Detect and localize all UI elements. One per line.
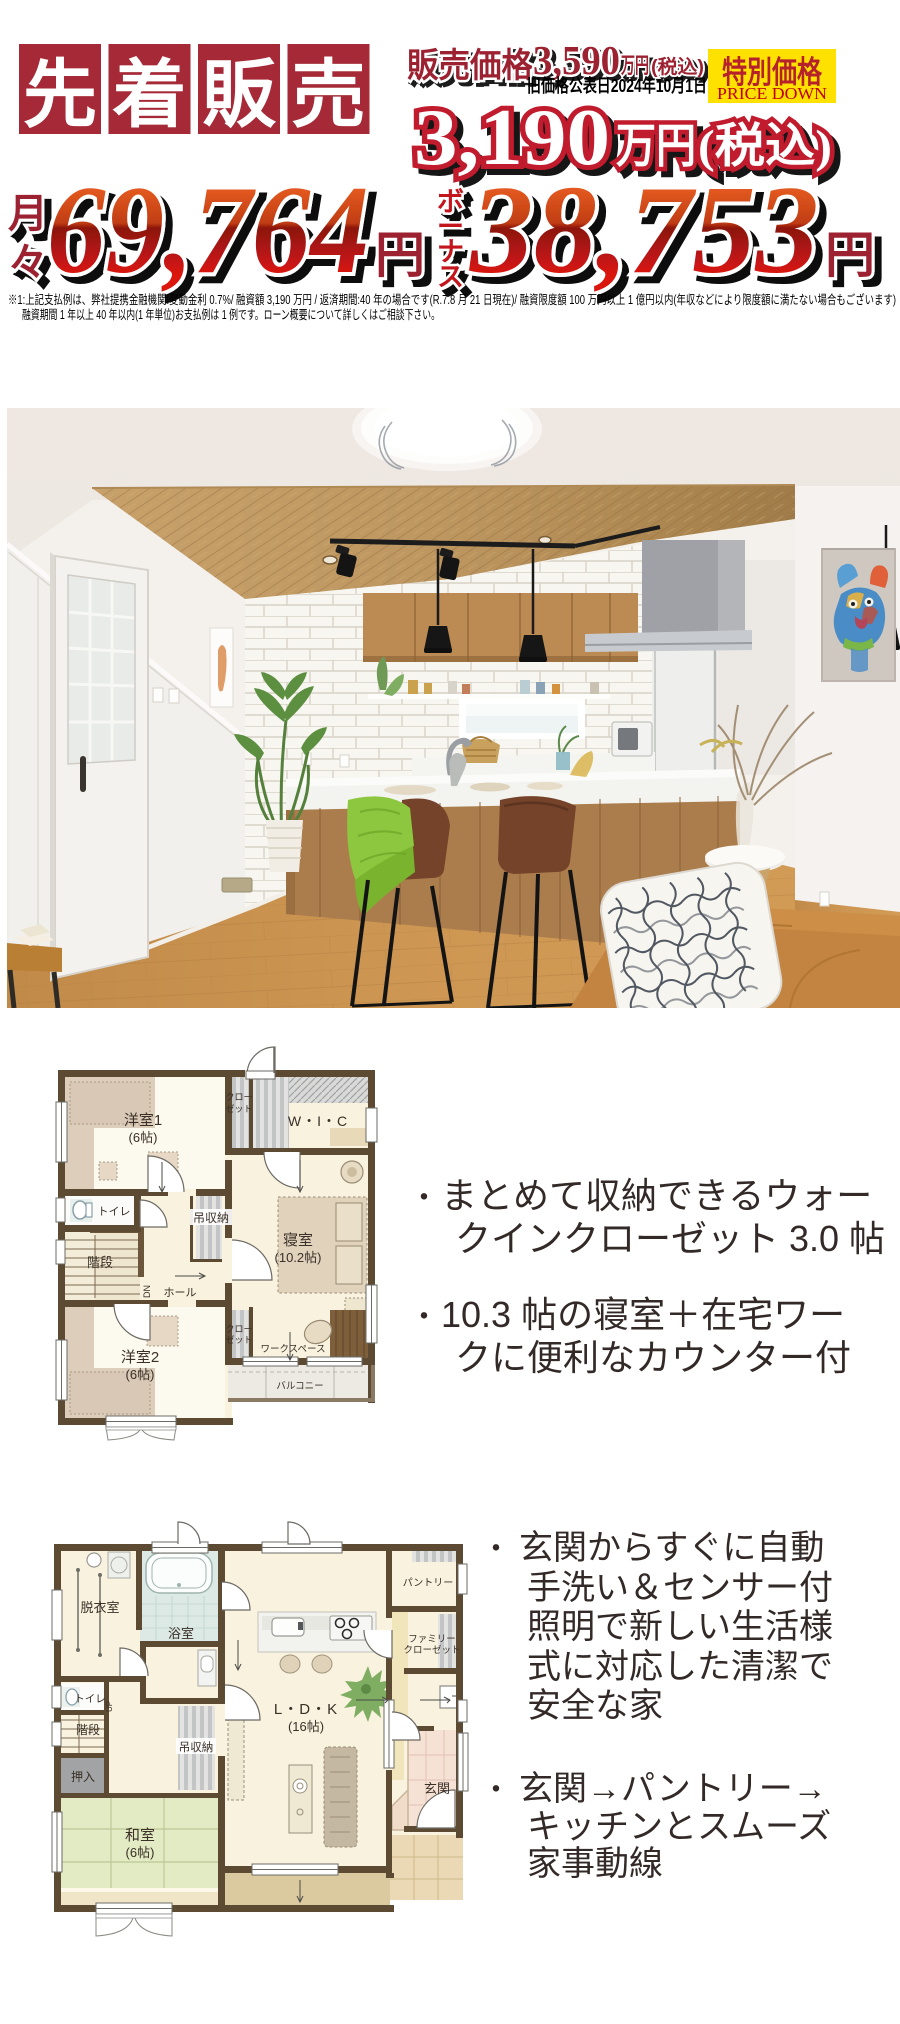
svg-text:ホール: ホール — [164, 1286, 197, 1299]
svg-text:着: 着 — [113, 55, 187, 137]
svg-text:クロー: クロー — [225, 1324, 252, 1334]
svg-text:円: 円 — [825, 227, 875, 283]
svg-text:階段: 階段 — [76, 1722, 100, 1737]
svg-text:W・I・C: W・I・C — [288, 1113, 348, 1129]
svg-text:バルコニー: バルコニー — [276, 1381, 323, 1392]
svg-text:月: 月 — [8, 192, 48, 236]
svg-text:万円: 万円 — [620, 53, 649, 78]
svg-text:トイレ: トイレ — [74, 1693, 106, 1705]
svg-text:和室: 和室 — [125, 1827, 155, 1844]
svg-text:69,764: 69,764 — [47, 161, 369, 300]
svg-text:販売価格: 販売価格 — [407, 47, 534, 85]
svg-text:玄関: 玄関 — [424, 1781, 450, 1796]
svg-text:DN: DN — [142, 1285, 152, 1298]
svg-text:脱衣室: 脱衣室 — [80, 1600, 119, 1615]
svg-text:(16帖): (16帖) — [288, 1719, 324, 1734]
svg-text:先: 先 — [23, 55, 97, 137]
svg-text:吊収納: 吊収納 — [193, 1211, 229, 1225]
svg-text:(税込): (税込) — [651, 55, 704, 78]
svg-text:L・D・K: L・D・K — [274, 1701, 338, 1718]
svg-text:寝室: 寝室 — [283, 1231, 313, 1249]
svg-text:UP: UP — [105, 1701, 114, 1712]
svg-text:吊収納: 吊収納 — [179, 1741, 214, 1754]
svg-text:融資期間 1 年以上 40 年以内(1 年単位)お支払例は: 融資期間 1 年以上 40 年以内(1 年単位)お支払例は 1 例です。ローン概… — [22, 307, 440, 322]
svg-text:PRICE DOWN: PRICE DOWN — [717, 84, 827, 103]
svg-text:押入: 押入 — [71, 1770, 95, 1784]
svg-text:売: 売 — [292, 55, 366, 137]
svg-text:階段: 階段 — [87, 1255, 113, 1270]
svg-text:ゼット: ゼット — [225, 1103, 252, 1114]
svg-text:ファミリー: ファミリー — [408, 1634, 456, 1645]
svg-text:洋室1: 洋室1 — [124, 1112, 162, 1129]
svg-text:(10.2帖): (10.2帖) — [275, 1250, 322, 1265]
svg-text:パントリー: パントリー — [403, 1577, 454, 1589]
svg-text:販: 販 — [202, 55, 277, 137]
svg-text:(6帖): (6帖) — [126, 1367, 155, 1382]
svg-text:円: 円 — [375, 227, 425, 283]
svg-text:(6帖): (6帖) — [126, 1845, 155, 1860]
svg-text:クロー: クロー — [225, 1092, 252, 1102]
svg-text:※1:上記支払例は、弊社提携金融機関:変動金利 0.7%/: ※1:上記支払例は、弊社提携金融機関:変動金利 0.7%/ 融資額 3,190 … — [8, 292, 896, 307]
svg-text:38,753: 38,753 — [469, 161, 819, 300]
svg-text:ス: ス — [437, 262, 464, 292]
svg-text:浴室: 浴室 — [168, 1626, 194, 1641]
svg-text:トイレ: トイレ — [98, 1206, 131, 1218]
svg-text:クローゼット: クローゼット — [403, 1644, 460, 1656]
svg-text:ゼット: ゼット — [225, 1334, 252, 1345]
svg-text:(6帖): (6帖) — [129, 1130, 158, 1145]
svg-text:洋室2: 洋室2 — [121, 1349, 159, 1366]
svg-text:ワークスペース: ワークスペース — [260, 1344, 325, 1355]
svg-text:々: 々 — [8, 241, 48, 285]
